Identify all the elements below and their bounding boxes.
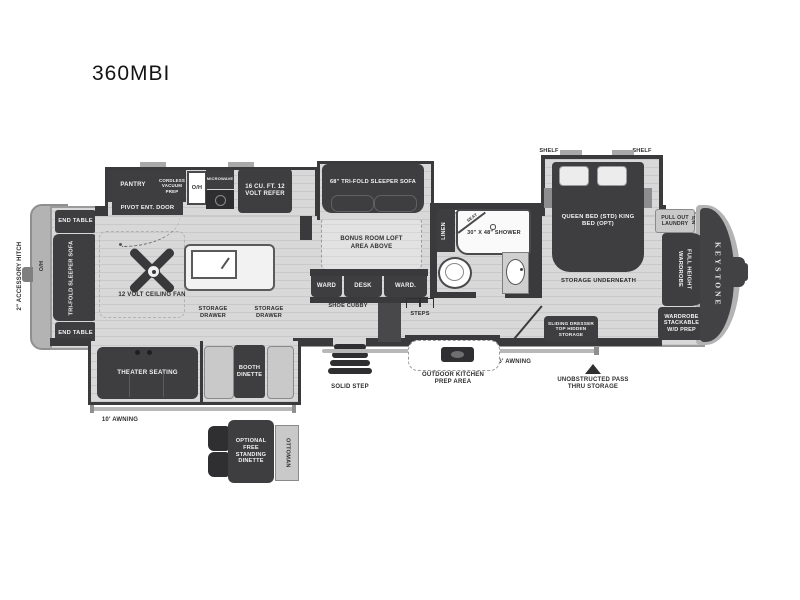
awning-10-label: 10' AWNING (96, 417, 144, 424)
shower: SEAT 30" x 48" SHOWER (456, 209, 531, 255)
rear-sleeper-sofa-label: TRI-FOLD SLEEPER SOFA (69, 236, 83, 321)
wall-segment (50, 338, 92, 346)
accessory-hitch-label: 2" ACCESSORY HITCH (17, 216, 29, 336)
kingpin-hitch-icon (743, 263, 748, 281)
keystone-brand-label: KEYSTONE (713, 242, 722, 308)
shower-label: 30" x 48" SHOWER (464, 230, 524, 236)
shower-seat-label: SEAT (461, 208, 483, 226)
dinette-chair-icon (208, 426, 229, 451)
ottoman: OTTOMAN (275, 425, 299, 481)
linen-closet: LINEN (437, 209, 455, 252)
door-swing-dot (119, 243, 122, 246)
floorplan-canvas: 360MBI 2" ACCESSORY HITCH O/H END TABLE … (0, 0, 800, 600)
booth-dinette-table: BOOTH DINETTE (234, 345, 265, 398)
bath-wall (430, 203, 437, 298)
wardrobe-left: WARD (311, 276, 342, 297)
microwave: MICROWAVE (206, 170, 234, 189)
kitchen-island (184, 244, 275, 291)
wardrobe-right: WARD. (384, 276, 427, 297)
storage-drawer-right-label: STORAGE DRAWER (246, 306, 292, 319)
wardrobe-wd-prep: WARDROBE STACKABLE W/D PREP (658, 307, 705, 340)
sliding-dresser: SLIDING DRESSER TOP HIDDEN STORAGE (544, 316, 598, 342)
bed: QUEEN BED (STD) KING BED (OPT) (552, 162, 644, 272)
sink-icon (191, 250, 237, 279)
steps-label: STEPS (404, 311, 436, 318)
storage-drawer-left-label: STORAGE DRAWER (190, 306, 236, 319)
floorplan-title: 360MBI (92, 62, 170, 86)
theater-seating: THEATER SEATING (97, 347, 198, 399)
bedside-shelf (544, 188, 552, 208)
bath-faucet-icon (520, 268, 523, 271)
solid-step-icon (330, 360, 370, 366)
cordless-vacuum-prep: CORDLESS VACUUM PREP (158, 170, 186, 202)
night-stand-label: N/S (692, 208, 700, 232)
wall-segment (310, 269, 428, 276)
pull-out-laundry: PULL OUT LAUNDRY (655, 209, 695, 233)
storage-underneath-label: STORAGE UNDERNEATH (556, 278, 641, 285)
ottoman-label: OTTOMAN (284, 438, 291, 468)
desk: DESK (344, 276, 382, 297)
booth-bench-right (267, 346, 294, 399)
ceiling-fan-hub (147, 265, 160, 278)
bonus-room-label: BONUS ROOM LOFT AREA ABOVE (332, 236, 412, 250)
theater-seating-label: THEATER SEATING (117, 369, 178, 376)
pillow-icon (597, 166, 627, 186)
rear-overhead-label: O/H (39, 251, 49, 281)
bath-vanity (502, 252, 529, 294)
cupholder-icon (147, 350, 152, 355)
shoe-cubby-label: SHOE CUBBY (322, 303, 374, 310)
pass-thru-label: UNOBSTRUCTED PASS THRU STORAGE (550, 377, 636, 391)
bed-label: QUEEN BED (STD) KING BED (OPT) (560, 214, 636, 228)
full-height-wardrobe-label: FULL HEIGHT WARDROBE (675, 233, 692, 306)
range-stove-icon (206, 190, 234, 209)
solid-step-icon (328, 368, 372, 374)
end-table-top: END TABLE (55, 210, 96, 233)
toilet-icon (438, 257, 472, 289)
bath-sink-icon (506, 259, 525, 285)
bonus-sofa-label: 68" TRI-FOLD SLEEPER SOFA (330, 179, 416, 186)
bonus-sleeper-sofa: 68" TRI-FOLD SLEEPER SOFA (322, 164, 424, 213)
pass-thru-arrow-icon (585, 364, 601, 374)
interior-steps-block (378, 303, 401, 342)
outdoor-kitchen-label: OUTDOOR KITCHEN PREP AREA (420, 372, 486, 386)
shower-head-icon (490, 224, 496, 230)
refrigerator: 16 CU. FT. 12 VOLT REFER (238, 169, 292, 213)
bedside-shelf (644, 188, 652, 208)
kitchen-overhead-cabinet: O/H (187, 171, 207, 205)
cupholder-icon (135, 350, 140, 355)
bonus-room-area: BONUS ROOM LOFT AREA ABOVE (321, 216, 422, 271)
awning-10-line (92, 407, 294, 411)
rear-sleeper-sofa: TRI-FOLD SLEEPER SOFA (53, 234, 98, 321)
steps-icon (406, 298, 434, 308)
dinette-chair-icon (208, 452, 229, 477)
pivot-entry-door: PIVOT ENT. DOOR (112, 202, 183, 215)
solid-step-label: SOLID STEP (322, 384, 378, 391)
grill-icon (441, 347, 474, 362)
bath-wall (430, 292, 476, 298)
linen-label: LINEN (441, 211, 451, 251)
pantry: PANTRY (108, 170, 158, 202)
ceiling-fan-label: 12 VOLT CEILING FAN (117, 292, 187, 299)
booth-bench-left (204, 346, 234, 399)
pillow-icon (559, 166, 589, 186)
optional-dinette-table: OPTIONAL FREE STANDING DINETTE (228, 420, 274, 483)
